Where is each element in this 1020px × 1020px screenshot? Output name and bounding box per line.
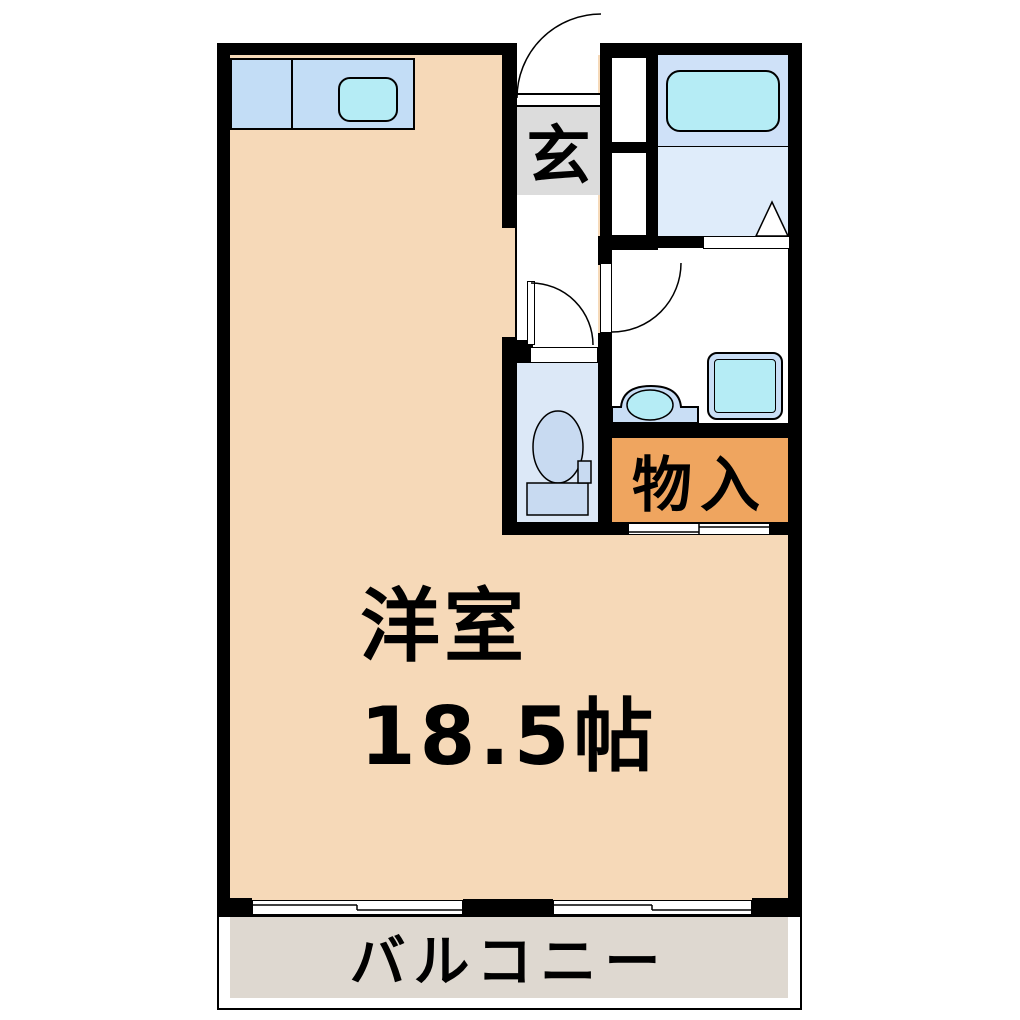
shaft-niche [612,58,646,142]
floor-plan: 玄 物入 バルコニー [0,0,1020,1020]
wall-toilet-bottom [502,522,612,535]
entrance-label: 玄 [527,105,591,197]
toilet-door-opening [530,347,598,363]
wall-toilet-left [502,337,517,535]
wall-bottom-left [217,898,252,915]
bathroom-door-opening [703,236,790,249]
balcony-area: バルコニー [230,917,788,998]
sliding-window-left [252,900,463,915]
toilet-door-leaf [527,281,535,345]
wall-bottom-middle [463,899,553,915]
entrance-door-leaf [515,93,602,107]
main-room-label: 洋室 18.5帖 [360,572,657,793]
wall-bathroom-bottom [648,236,705,248]
main-room-size: 18.5帖 [360,690,657,783]
wall-entrance-left [502,43,517,228]
wall-right [788,43,802,915]
room-opening-line [515,228,517,337]
bathtub [666,70,780,132]
wall-bottom-right [752,898,802,915]
storage-area: 物入 [612,438,788,522]
washing-machine-pan [707,352,783,420]
counter-divider-line [291,60,293,128]
toilet-room-floor [517,360,598,522]
shaft-niche [612,153,646,235]
storage-label: 物入 [632,437,768,524]
bathroom-floor [658,147,788,237]
wall-left [217,43,230,915]
kitchen-sink [338,77,398,122]
balcony-label: バルコニー [350,917,669,998]
main-room-name: 洋室 [360,580,528,673]
washroom-door-leaf [600,263,612,333]
sliding-window-right [553,900,752,915]
washing-machine-pan-inner [714,359,776,413]
entrance-area: 玄 [517,107,600,195]
wall-top-left [217,43,517,55]
storage-sliding-door [628,523,770,535]
